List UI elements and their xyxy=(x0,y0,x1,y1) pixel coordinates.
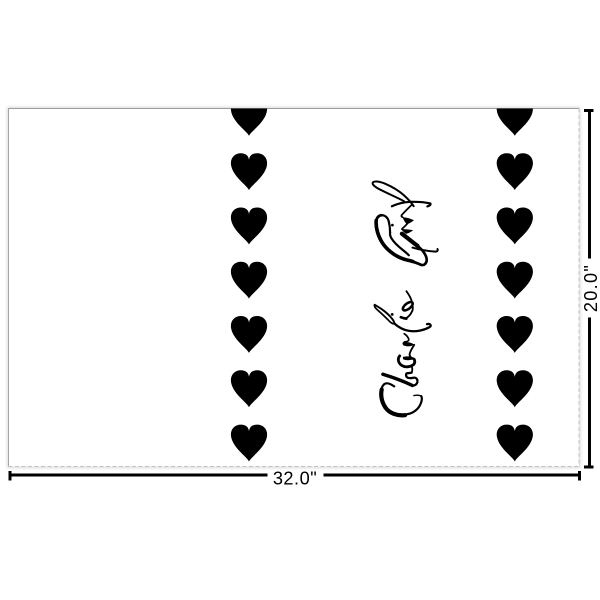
svg-text:20.0": 20.0" xyxy=(581,264,600,312)
svg-text:32.0": 32.0" xyxy=(273,468,317,488)
